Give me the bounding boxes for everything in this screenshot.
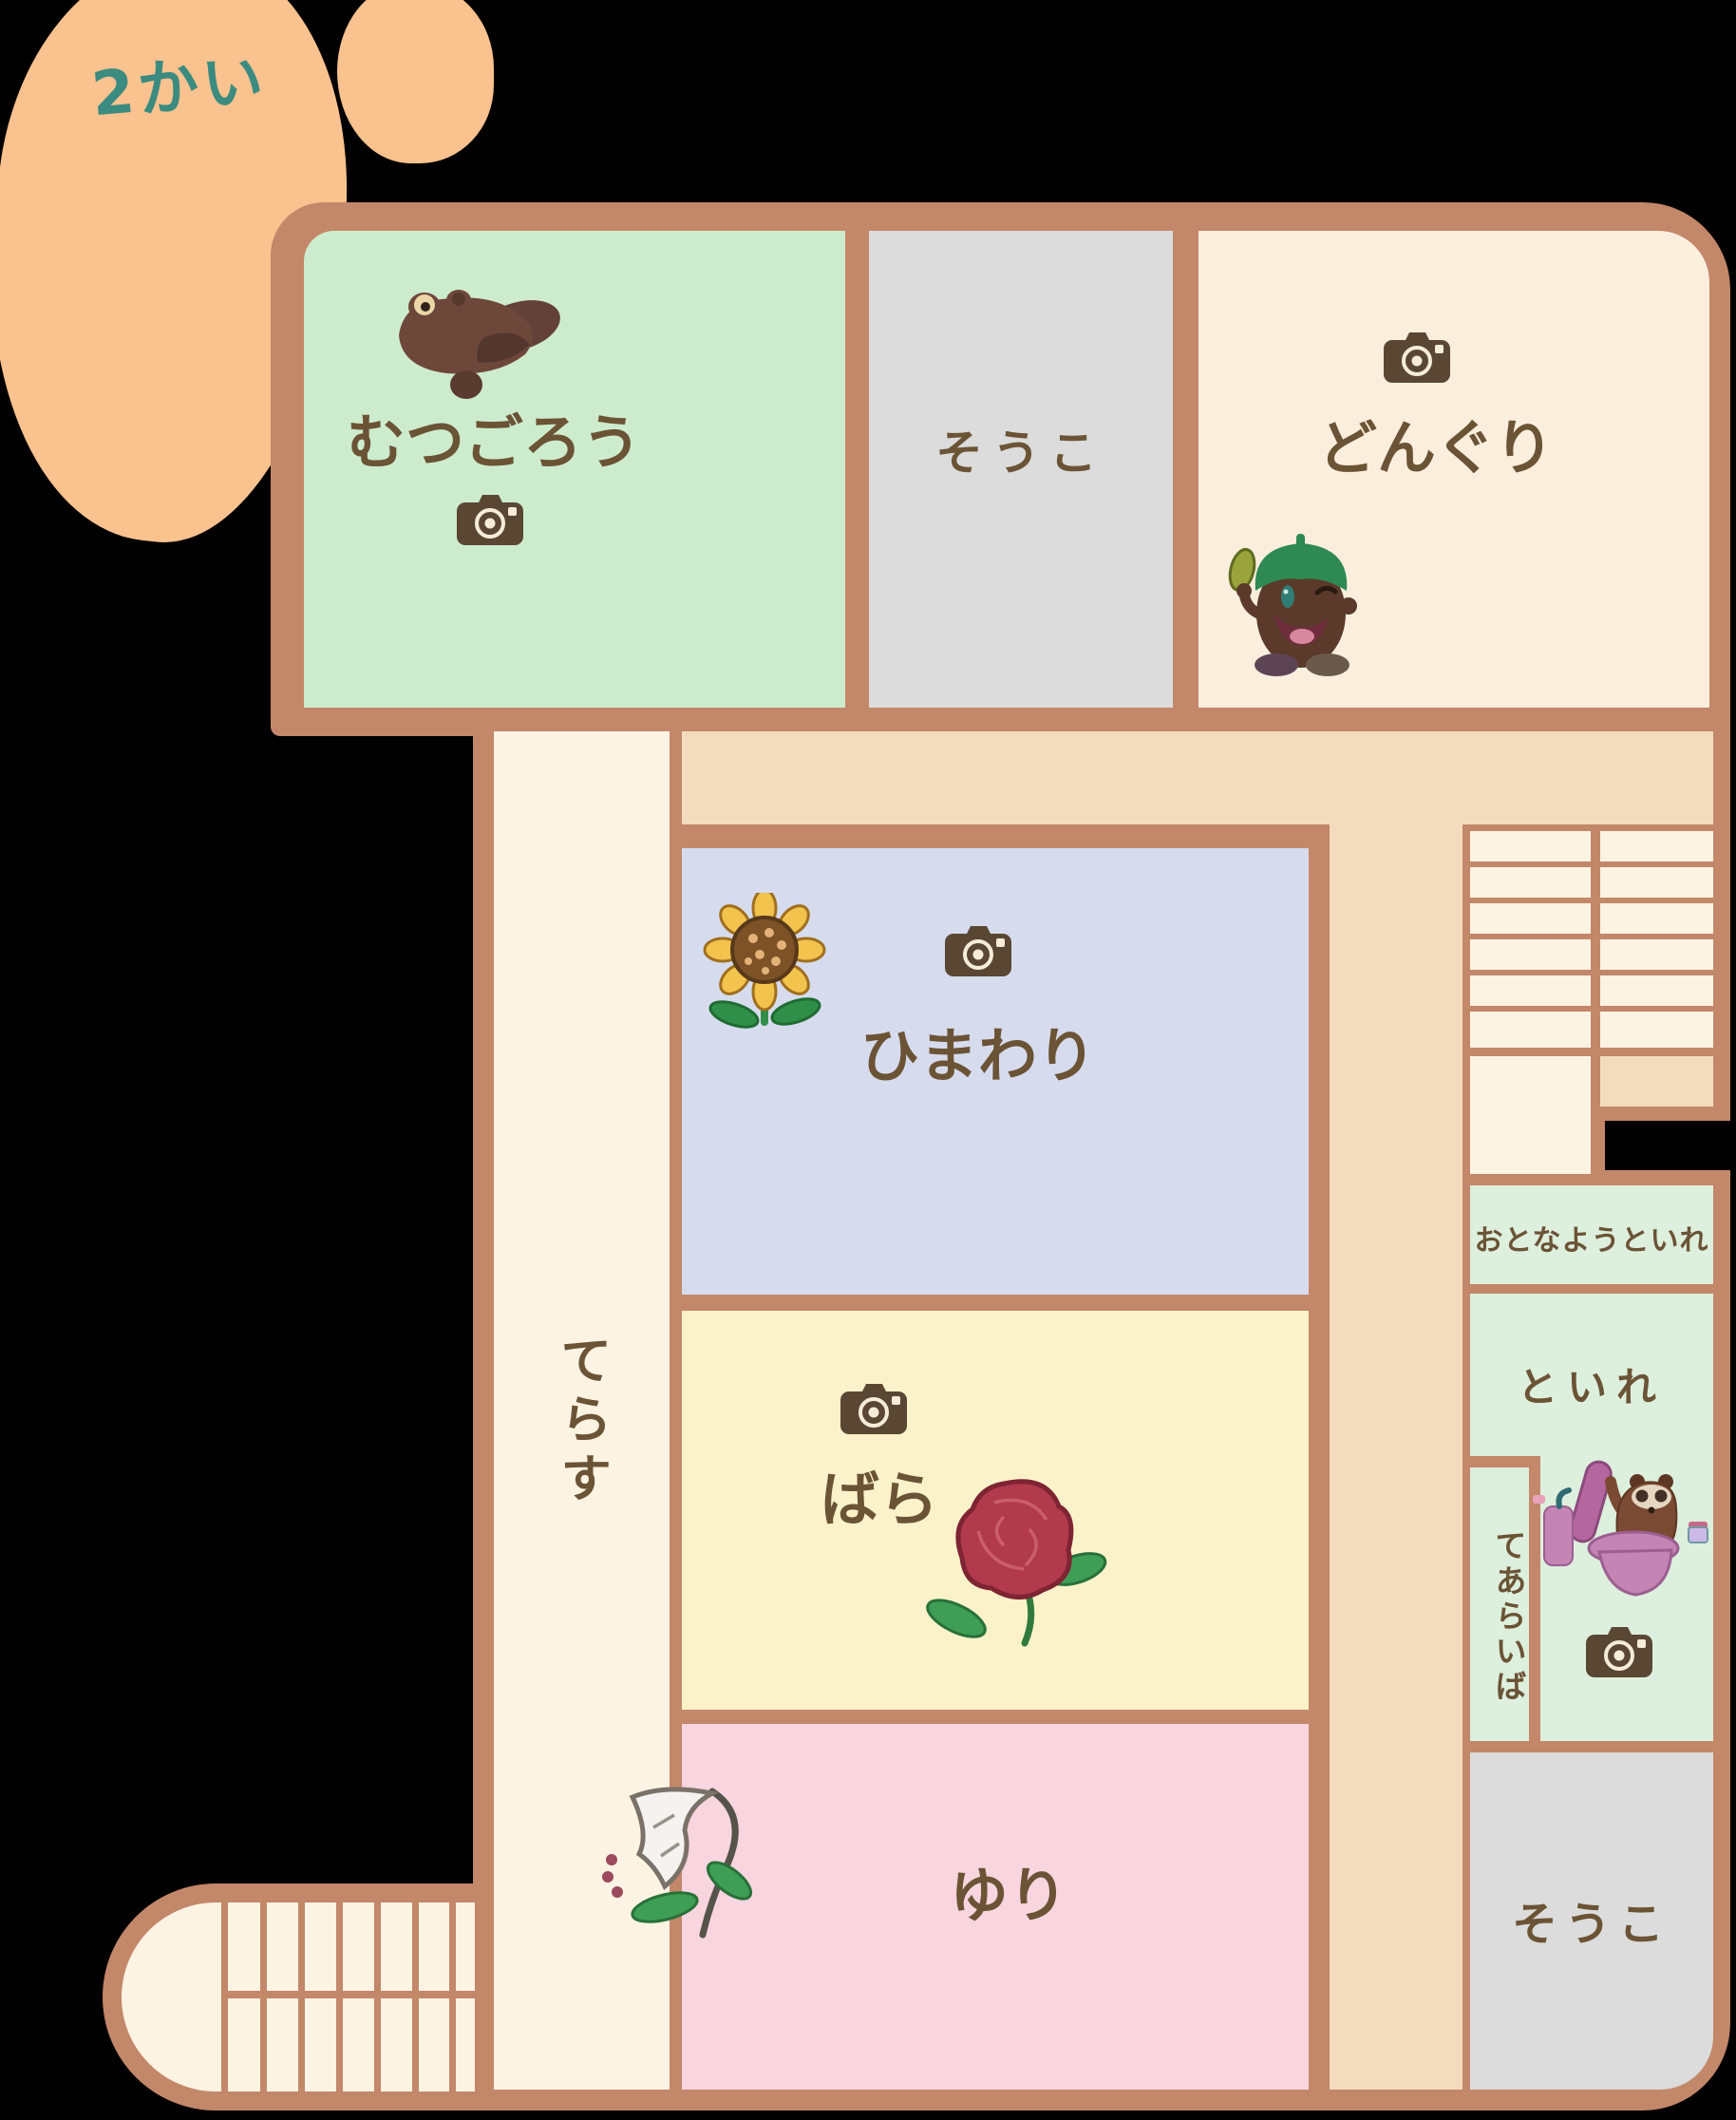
label-souko-top: そうこ — [869, 427, 1173, 480]
building-edge-notch — [1605, 1121, 1736, 1170]
stair-tread — [1600, 939, 1713, 970]
stair-tread — [1600, 831, 1713, 861]
stair-line-mid — [221, 1991, 475, 1998]
stair-tread — [1470, 939, 1591, 970]
label-mutsugorou: むつごろう — [304, 410, 684, 475]
camera-icon — [840, 1381, 908, 1436]
hallway-vertical — [1330, 824, 1462, 2090]
rose-icon — [914, 1474, 1118, 1650]
stair-tread — [1470, 975, 1591, 1006]
label-himawari: ひまわり — [817, 1024, 1140, 1088]
sunflower-icon — [701, 893, 829, 1040]
mudskipper-character — [375, 278, 570, 402]
label-tearaiba: てあらいば — [1478, 1503, 1525, 1731]
camera-icon — [1585, 1624, 1653, 1679]
acorn-character — [1227, 521, 1369, 682]
label-souko-bottom: そうこ — [1470, 1900, 1713, 1950]
camera-icon — [944, 923, 1012, 978]
label-toire: といれ — [1470, 1366, 1713, 1410]
stair-tread — [1470, 1012, 1591, 1048]
camera-icon — [456, 492, 524, 547]
label-yuri: ゆり — [866, 1864, 1151, 1928]
stair-tread — [1470, 831, 1591, 861]
stair-tread — [1470, 903, 1591, 934]
stair-tread — [1470, 867, 1591, 898]
label-terasu: てらす — [549, 1313, 610, 1531]
stair-landing — [1470, 1056, 1591, 1174]
orange-blob-small — [337, 0, 494, 163]
label-donguri: どんぐり — [1227, 416, 1645, 481]
floor-plan-2f: 2かい むつごろう そうこ どんぐり ひまわり ばら ゆり — [0, 0, 1736, 2120]
stair-tread — [1600, 1012, 1713, 1048]
stair-upper-fill — [1600, 1056, 1713, 1107]
lily-icon — [596, 1778, 767, 1944]
stair-tread — [1600, 903, 1713, 934]
label-otona-you-toire: おとなようといれ — [1470, 1225, 1713, 1257]
tanuki-on-toilet-icon — [1531, 1451, 1711, 1613]
camera-icon — [1383, 330, 1451, 385]
stair-tread — [1600, 867, 1713, 898]
hallway-horizontal — [682, 731, 1713, 824]
stair-tread — [1600, 975, 1713, 1006]
